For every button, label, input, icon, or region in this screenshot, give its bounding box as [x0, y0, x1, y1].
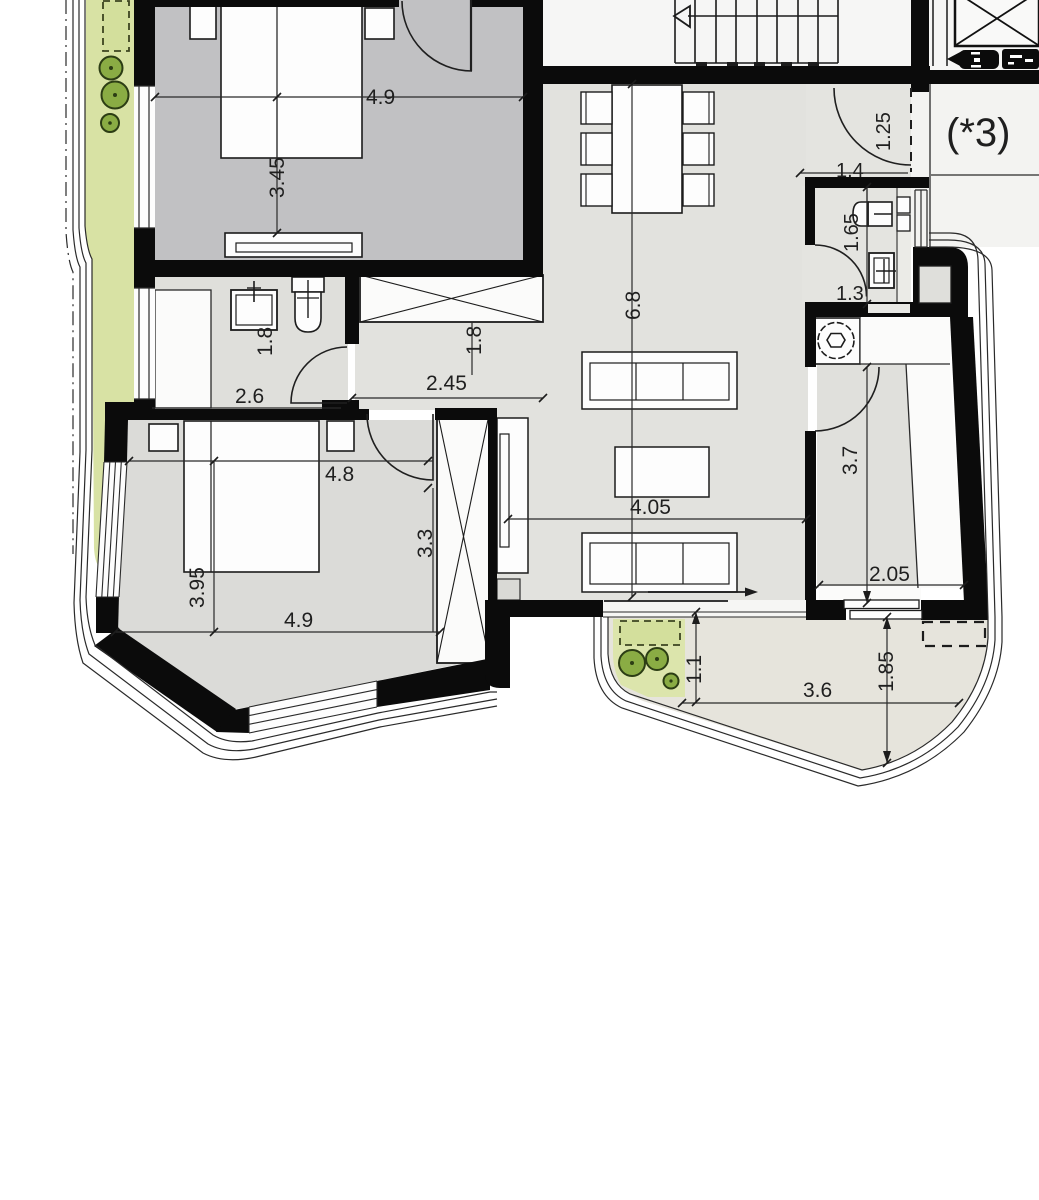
- svg-text:1.8: 1.8: [254, 327, 277, 356]
- svg-text:1.4: 1.4: [836, 160, 864, 182]
- svg-text:4.9: 4.9: [366, 86, 395, 109]
- svg-text:3.7: 3.7: [839, 446, 862, 475]
- svg-text:3.3: 3.3: [414, 529, 437, 558]
- svg-text:2.6: 2.6: [235, 385, 264, 408]
- svg-text:1.1: 1.1: [683, 655, 706, 684]
- svg-text:3.6: 3.6: [803, 679, 832, 702]
- svg-text:1.8: 1.8: [463, 326, 486, 355]
- svg-text:4.9: 4.9: [284, 609, 313, 632]
- svg-text:3.45: 3.45: [266, 157, 289, 198]
- svg-text:1.85: 1.85: [875, 651, 898, 692]
- svg-text:1.65: 1.65: [841, 213, 863, 252]
- svg-text:2.05: 2.05: [869, 563, 910, 586]
- svg-text:6.8: 6.8: [622, 291, 645, 320]
- svg-text:4.8: 4.8: [325, 463, 354, 486]
- svg-text:1.3: 1.3: [836, 283, 864, 305]
- svg-text:2.45: 2.45: [426, 372, 467, 395]
- svg-text:(*3): (*3): [946, 111, 1010, 155]
- svg-text:3.95: 3.95: [186, 567, 209, 608]
- svg-text:4.05: 4.05: [630, 496, 671, 519]
- svg-text:1.25: 1.25: [873, 112, 895, 151]
